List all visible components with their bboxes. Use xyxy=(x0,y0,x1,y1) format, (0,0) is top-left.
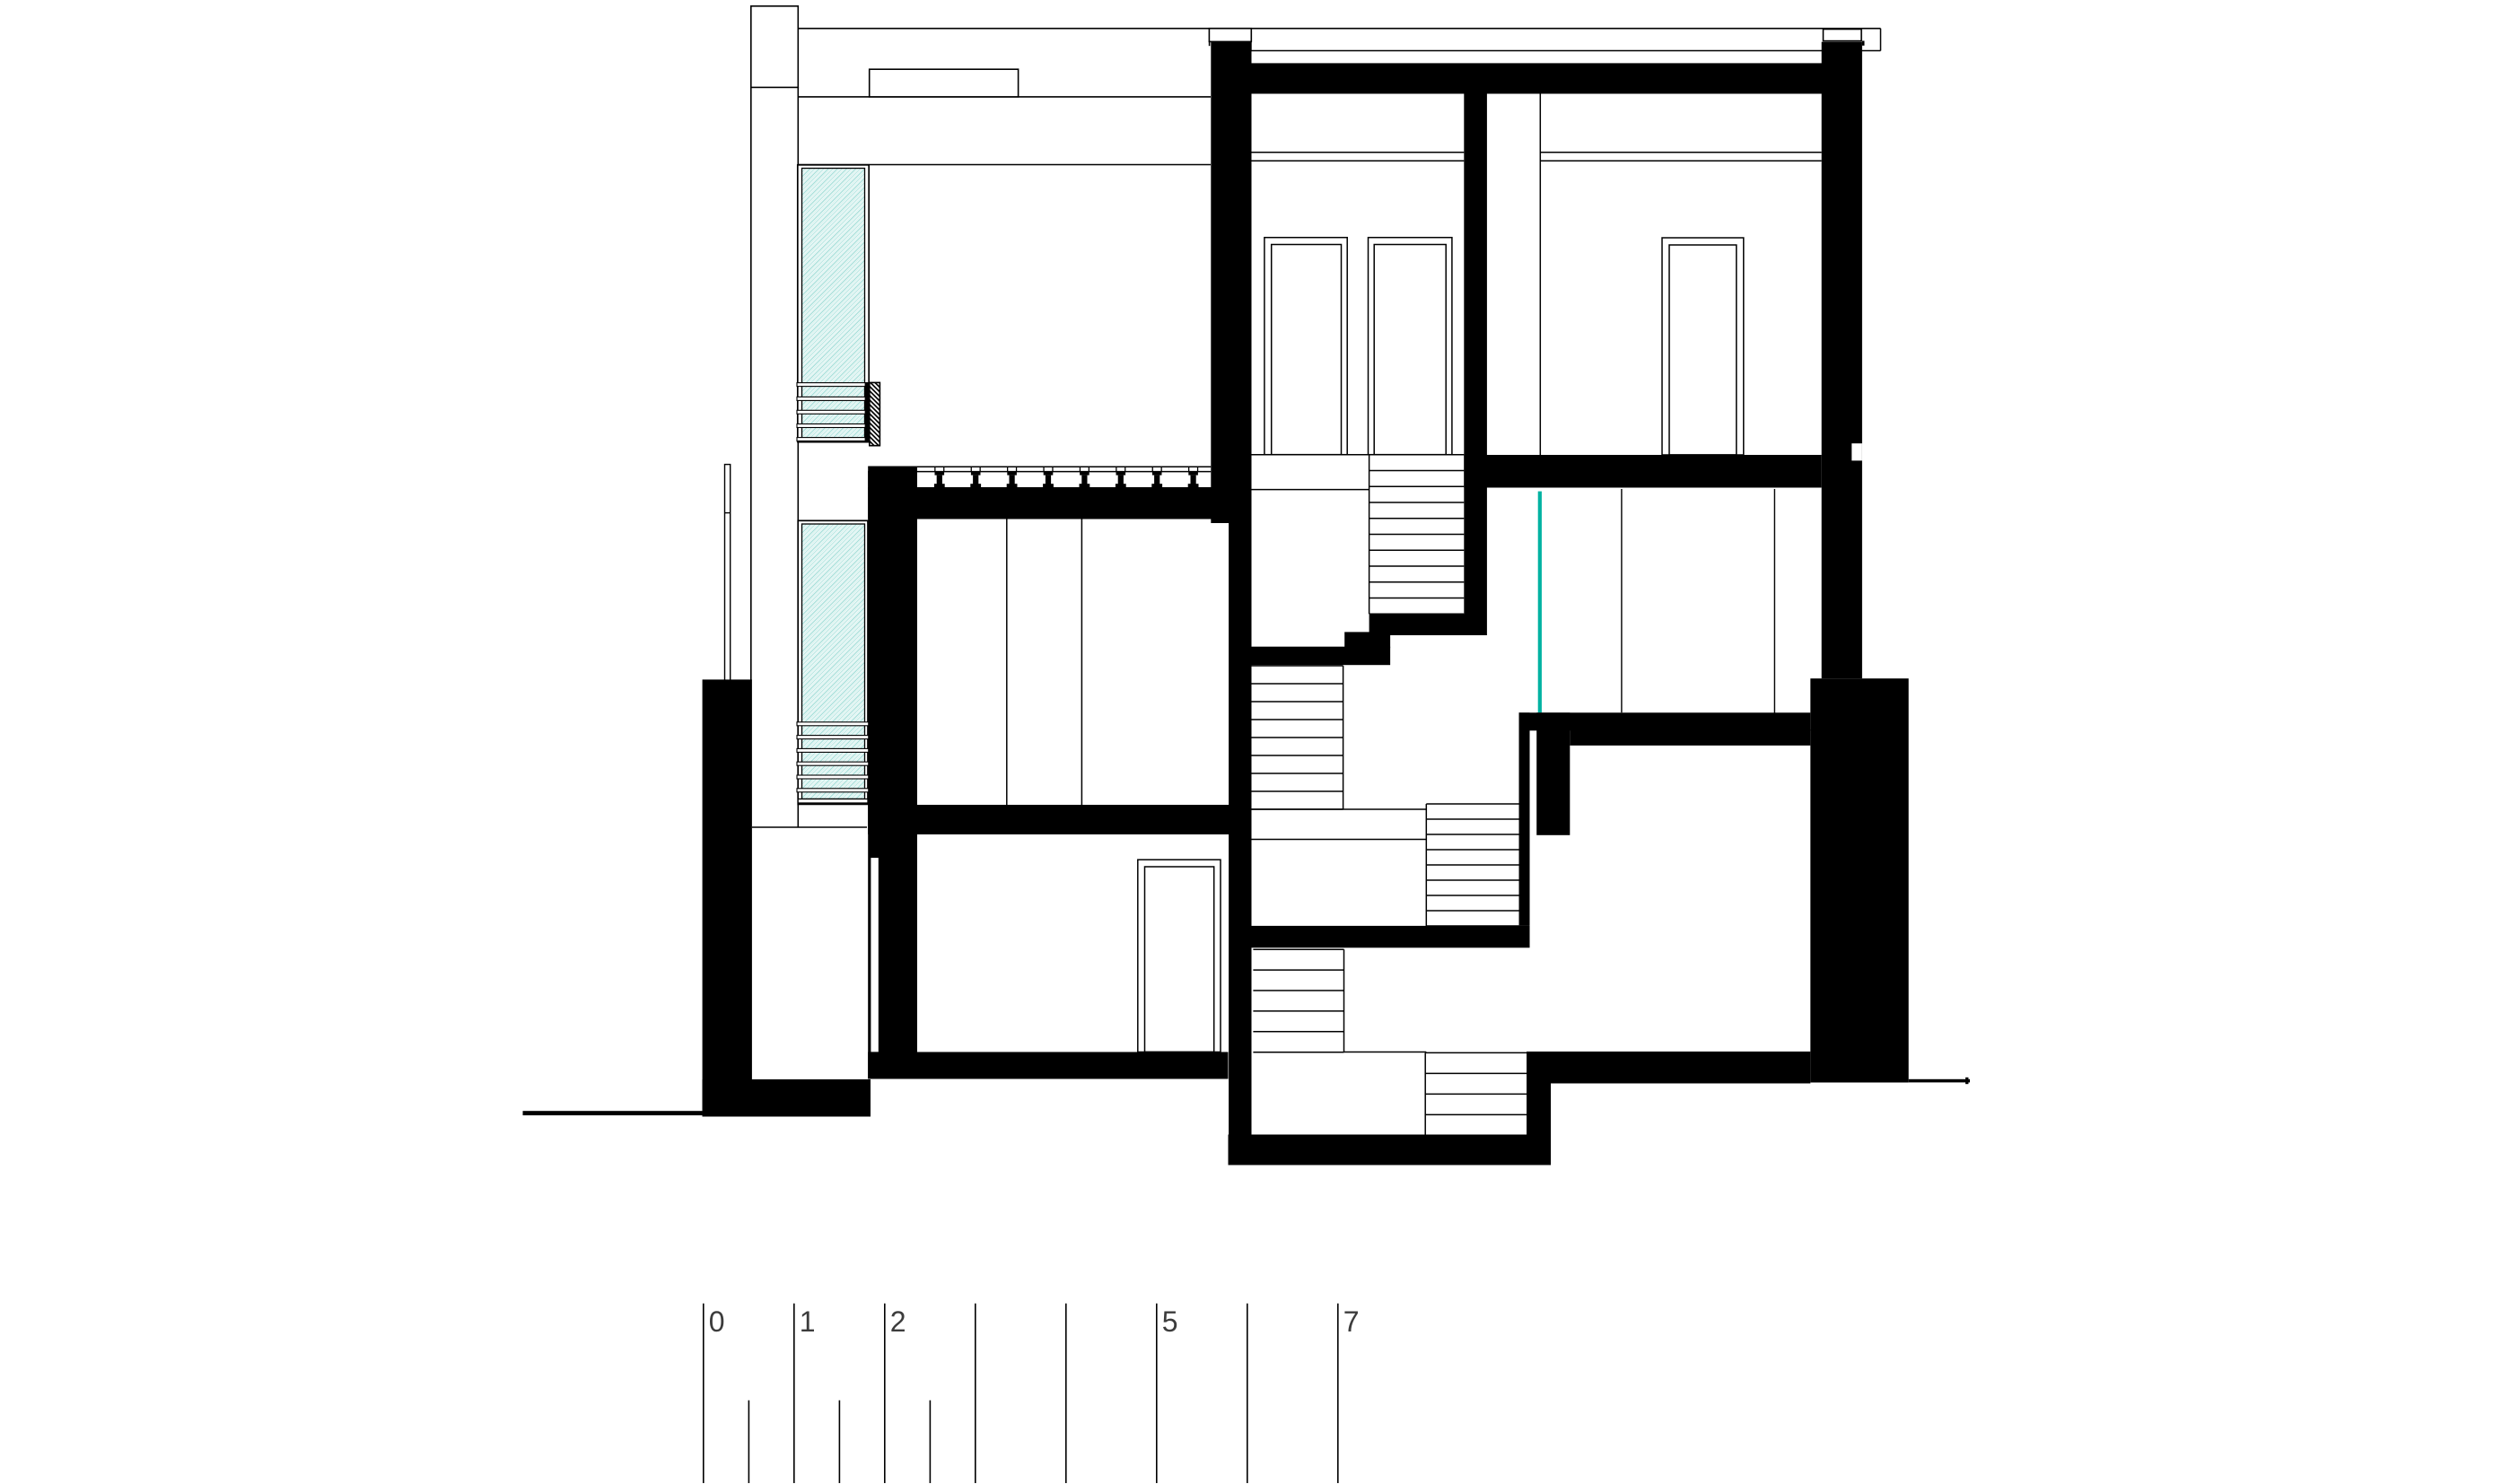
svg-text:5: 5 xyxy=(1162,1305,1178,1338)
svg-text:0: 0 xyxy=(709,1305,725,1338)
svg-text:7: 7 xyxy=(1343,1305,1360,1338)
svg-text:1: 1 xyxy=(800,1305,816,1338)
svg-text:2: 2 xyxy=(890,1305,906,1338)
